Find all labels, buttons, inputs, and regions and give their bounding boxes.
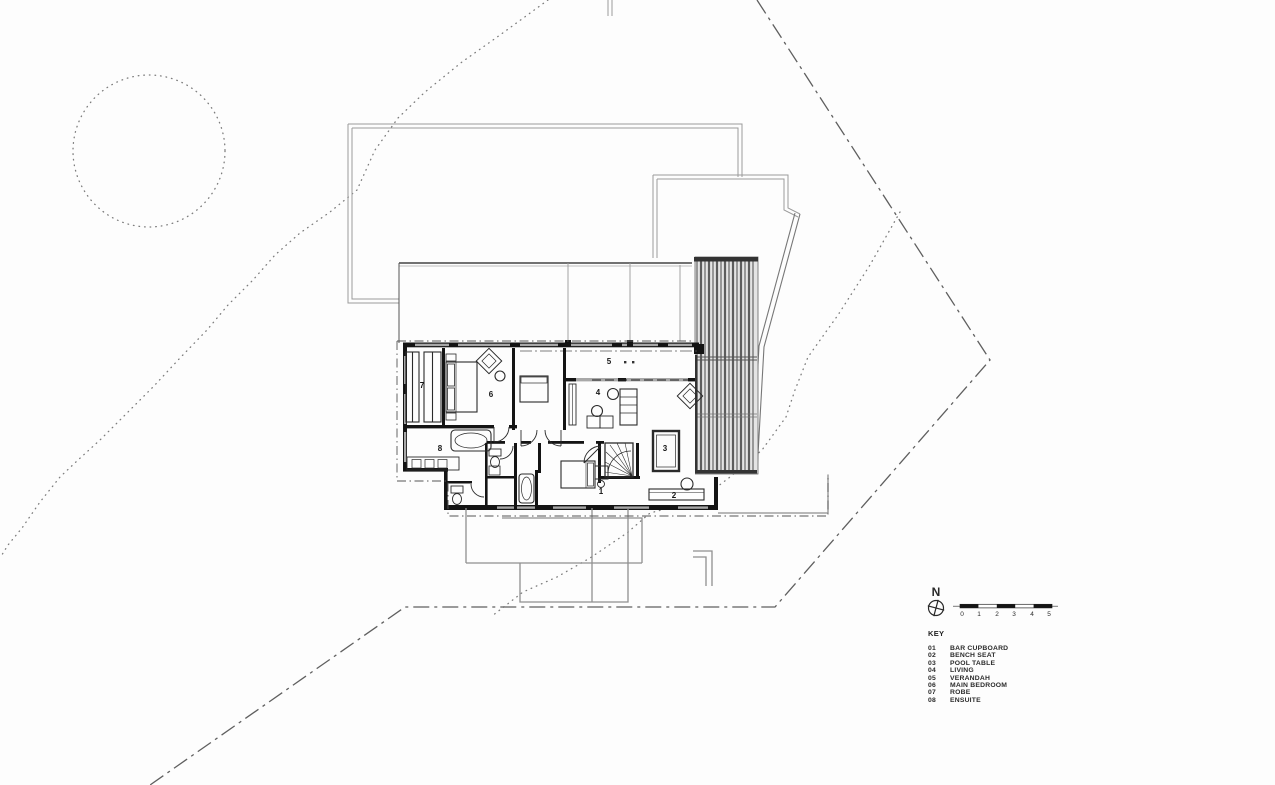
scale-bar-graphic	[953, 604, 1058, 608]
room-label-main-bedroom: 6	[489, 391, 493, 399]
north-label: N	[932, 585, 941, 599]
key-item: 05 VERANDAH	[928, 675, 1068, 682]
key-item-num: 02	[928, 652, 950, 659]
key-title: KEY	[928, 629, 1068, 638]
key-item-label: LIVING	[950, 667, 1068, 674]
scale-tick-0: 0	[960, 611, 964, 618]
scale-tick-4: 4	[1030, 611, 1034, 618]
room-label-robe: 7	[420, 382, 424, 390]
site-contour-circle	[73, 75, 225, 227]
key-item: 08 ENSUITE	[928, 697, 1068, 704]
key-item-num: 01	[928, 645, 950, 652]
key-item-label: BAR CUPBOARD	[950, 645, 1068, 652]
key-item-num: 08	[928, 697, 950, 704]
key-item: 04 LIVING	[928, 667, 1068, 674]
key-item-label: MAIN BEDROOM	[950, 682, 1068, 689]
key-item-num: 07	[928, 689, 950, 696]
key-item: 07 ROBE	[928, 689, 1068, 696]
room-label-pool-table: 3	[663, 445, 667, 453]
floor-plan-sheet: 1 2 3 4 5 6 7 8 N 0 1 2 3 4 5 KEY 01 BAR…	[0, 0, 1275, 785]
key-item-label: ROBE	[950, 689, 1068, 696]
key-item-label: ENSUITE	[950, 697, 1068, 704]
key-item-num: 06	[928, 682, 950, 689]
floor-plan-drawing	[0, 0, 1275, 785]
key-item-label: VERANDAH	[950, 675, 1068, 682]
key-item: 06 MAIN BEDROOM	[928, 682, 1068, 689]
room-label-verandah: 5	[607, 358, 611, 366]
upper-deck	[399, 258, 712, 345]
key-item-label: BENCH SEAT	[950, 652, 1068, 659]
key-item-num: 04	[928, 667, 950, 674]
angled-east-wall	[752, 213, 800, 472]
room-label-bar-cupboard: 1	[599, 488, 603, 496]
key-item: 03 POOL TABLE	[928, 660, 1068, 667]
room-label-ensuite: 8	[438, 445, 442, 453]
north-arrow-icon	[926, 598, 947, 619]
key-legend: KEY 01 BAR CUPBOARD 02 BENCH SEAT 03 POO…	[928, 629, 1068, 704]
scale-tick-5: 5	[1047, 611, 1051, 618]
room-label-bench-seat: 2	[672, 492, 676, 500]
scale-tick-1: 1	[977, 611, 981, 618]
room-label-living: 4	[596, 389, 600, 397]
key-item: 02 BENCH SEAT	[928, 652, 1068, 659]
key-item-num: 05	[928, 675, 950, 682]
scale-tick-3: 3	[1012, 611, 1016, 618]
key-item: 01 BAR CUPBOARD	[928, 645, 1068, 652]
key-item-num: 03	[928, 660, 950, 667]
key-item-label: POOL TABLE	[950, 660, 1068, 667]
scale-tick-2: 2	[995, 611, 999, 618]
